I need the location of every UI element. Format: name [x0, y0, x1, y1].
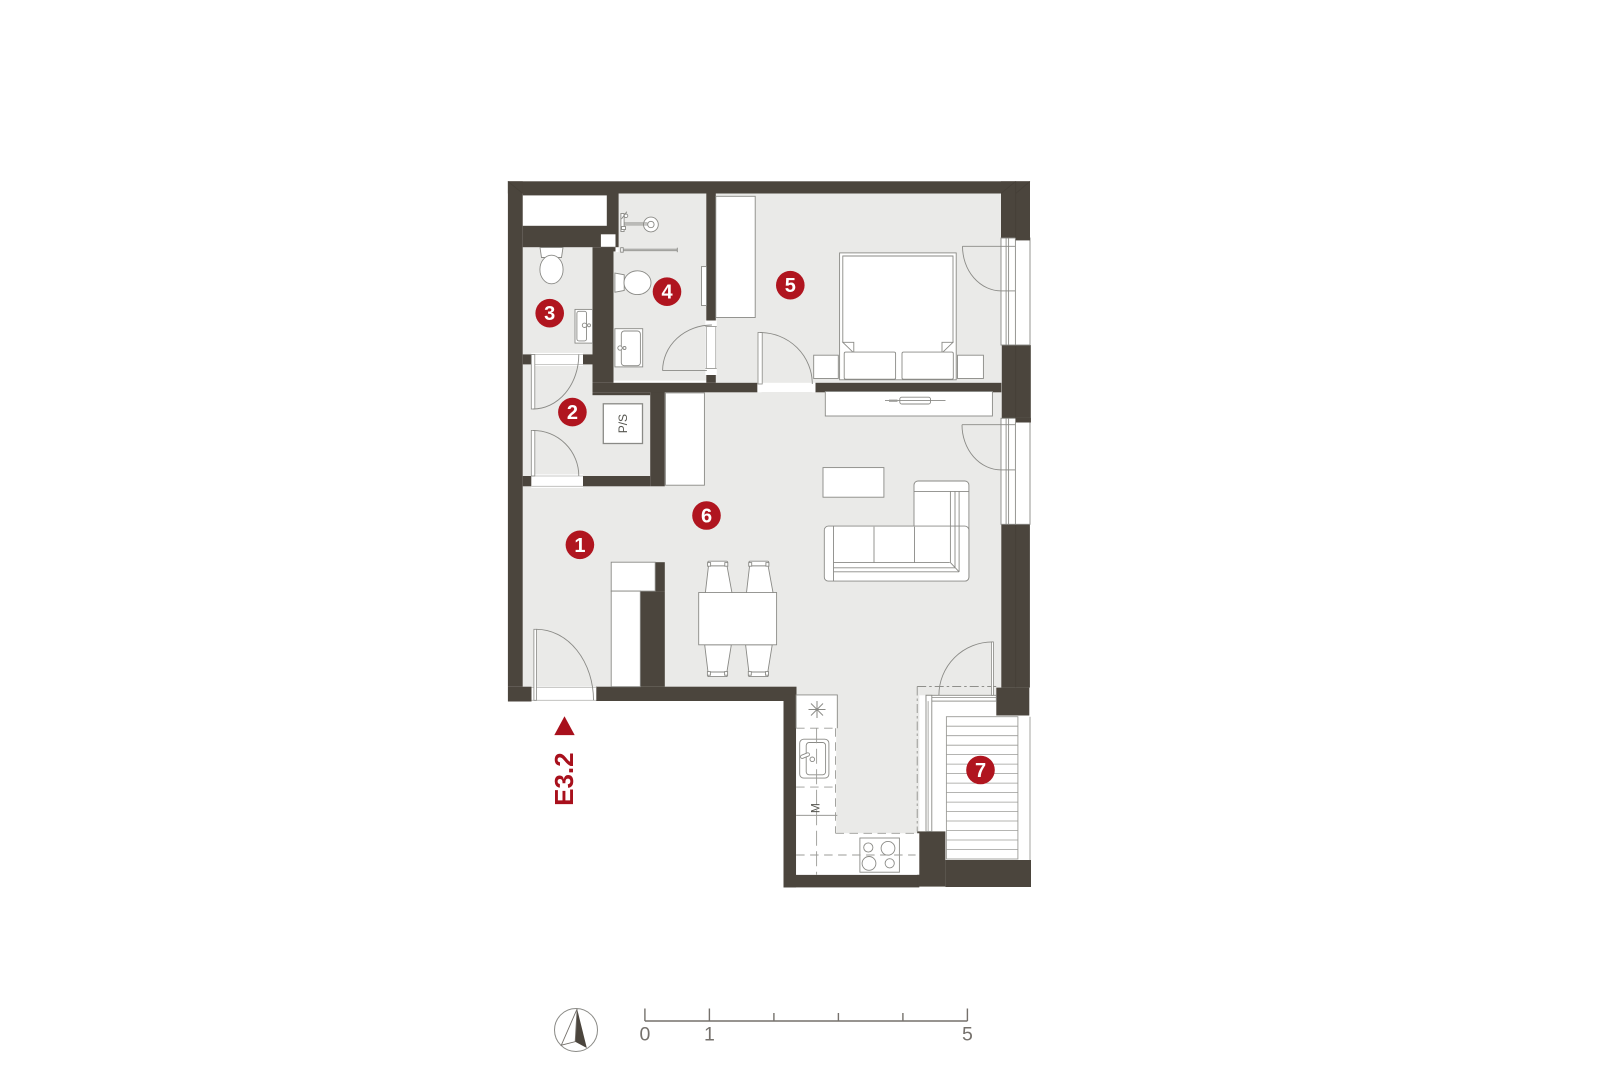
svg-text:3: 3 — [544, 303, 555, 325]
svg-text:M: M — [808, 803, 822, 813]
svg-text:E3.2: E3.2 — [549, 752, 579, 806]
svg-text:5: 5 — [962, 1024, 973, 1046]
svg-text:0: 0 — [639, 1024, 650, 1046]
svg-text:P/S: P/S — [616, 414, 630, 433]
svg-text:1: 1 — [574, 535, 585, 557]
svg-text:6: 6 — [701, 506, 712, 528]
svg-text:7: 7 — [975, 760, 986, 782]
svg-text:2: 2 — [567, 402, 578, 424]
svg-text:4: 4 — [661, 282, 673, 304]
svg-text:5: 5 — [785, 275, 796, 297]
svg-text:1: 1 — [704, 1024, 715, 1046]
